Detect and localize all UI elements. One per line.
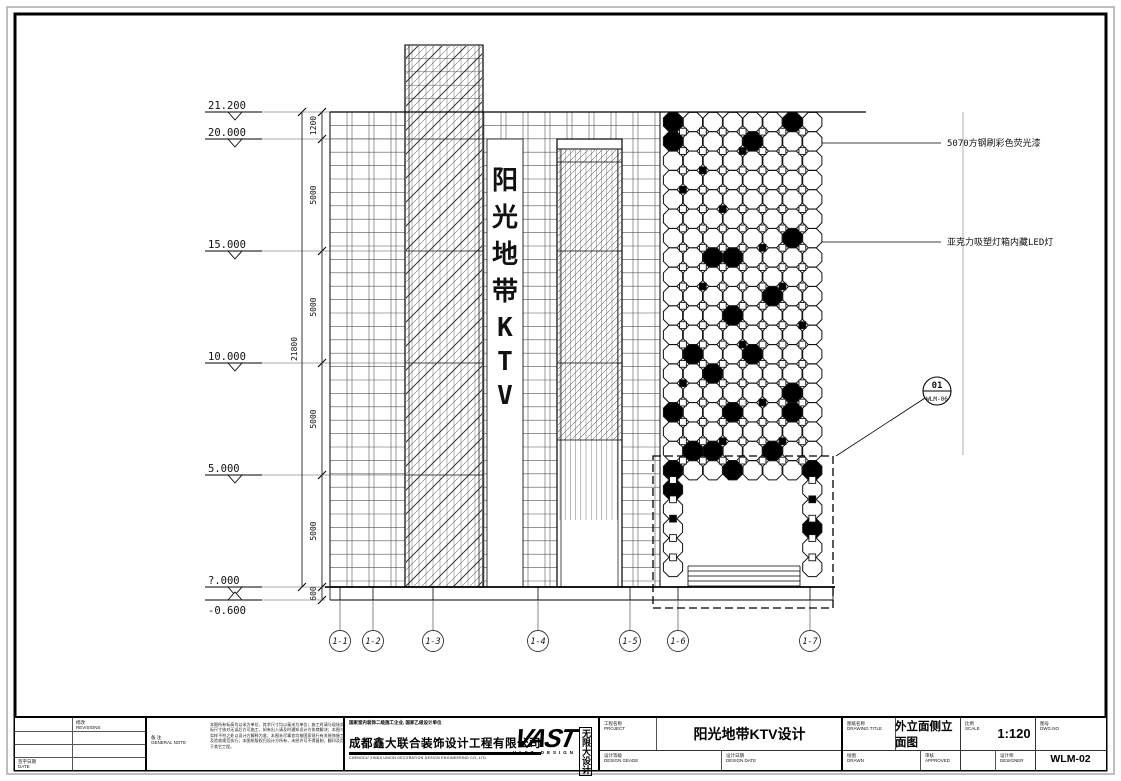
project-name: 阳光地带KTV设计 [656, 718, 843, 750]
square-cell [680, 341, 687, 348]
drawing-title-section: 图纸名称 DRAWING TITLE 外立面侧立面图 比例 SCALE 1:12… [843, 718, 1106, 770]
square-cell [799, 206, 806, 213]
vast-logo: VAST VAST DESIGN 无限大设计 [513, 727, 592, 776]
square-cell [739, 399, 746, 406]
square-cell [719, 244, 726, 251]
square-cell [799, 457, 806, 464]
square-cell [739, 186, 746, 193]
square-cell [719, 186, 726, 193]
square-cell [670, 496, 677, 503]
square-cell [719, 399, 726, 406]
square-cell [719, 419, 726, 426]
square-cell [719, 225, 726, 232]
square-cell [809, 515, 816, 522]
square-cell [799, 438, 806, 445]
square-cell [680, 360, 687, 367]
square-cell [719, 148, 726, 155]
square-cell [779, 419, 786, 426]
square-cell [699, 341, 706, 348]
square-cell [759, 148, 766, 155]
square-cell [779, 128, 786, 135]
date-label: 签字日期 DATE [16, 758, 38, 770]
square-cell [719, 322, 726, 329]
square-cell [799, 167, 806, 174]
approved-label: 审核 APPROVED [923, 752, 952, 764]
scale-label: 比例 SCALE [963, 720, 982, 732]
grid-bubble-label: 1-6 [670, 637, 685, 647]
square-cell [739, 167, 746, 174]
dwg-no-label: 图号 DWG.NO [1038, 720, 1061, 732]
square-cell [699, 399, 706, 406]
square-cell [719, 128, 726, 135]
square-cell [670, 477, 677, 484]
square-cell [680, 128, 687, 135]
square-cell [799, 419, 806, 426]
square-cell [719, 302, 726, 309]
grid-bubble-label: 1-7 [802, 637, 818, 647]
square-cell [799, 264, 806, 271]
square-cell [680, 380, 687, 387]
sign-char: 光 [491, 203, 518, 233]
square-cell [739, 264, 746, 271]
square-cell [759, 322, 766, 329]
general-note-text: 本图所有标高均以米为单位，其余尺寸均以毫米为单位；施工时请与现场实际尺寸核对无误… [207, 720, 347, 751]
elevation-mark: 5.000 [208, 463, 240, 475]
square-cell [699, 322, 706, 329]
square-cell [699, 264, 706, 271]
sign-char: 带 [492, 277, 518, 307]
square-cell [699, 419, 706, 426]
grid-bubble-label: 1-1 [332, 637, 347, 647]
square-cell [670, 535, 677, 542]
square-cell [759, 360, 766, 367]
square-cell [779, 264, 786, 271]
square-cell [719, 206, 726, 213]
square-cell [680, 457, 687, 464]
drawing-title-label: 图纸名称 DRAWING TITLE [845, 720, 884, 732]
square-cell [699, 283, 706, 290]
square-cell [670, 554, 677, 561]
square-cell [759, 244, 766, 251]
square-cell [680, 167, 687, 174]
elevation-mark: 21.200 [208, 100, 246, 112]
sign-char: 地 [492, 240, 518, 270]
square-cell [739, 341, 746, 348]
square-cell [779, 322, 786, 329]
square-cell [759, 128, 766, 135]
sign-char: K [497, 313, 513, 343]
square-cell [719, 380, 726, 387]
square-cell [680, 283, 687, 290]
dim-segment: 1200 [309, 116, 318, 135]
square-cell [809, 535, 816, 542]
square-cell [699, 225, 706, 232]
square-cell [699, 457, 706, 464]
square-cell [739, 283, 746, 290]
square-cell [779, 380, 786, 387]
square-cell [759, 264, 766, 271]
square-cell [699, 186, 706, 193]
square-cell [699, 148, 706, 155]
square-cell [739, 457, 746, 464]
revisions-label: 修改 REVISIONS [74, 719, 103, 731]
grid-bubbles: 1-11-21-31-41-51-61-7 [330, 600, 821, 652]
square-cell [779, 341, 786, 348]
square-cell [779, 283, 786, 290]
square-cell [739, 438, 746, 445]
square-cell [759, 167, 766, 174]
square-cell [799, 244, 806, 251]
square-cell [680, 264, 687, 271]
square-cell [759, 457, 766, 464]
grid-bubble-label: 1-4 [530, 637, 545, 647]
square-cell [799, 283, 806, 290]
square-cell [739, 419, 746, 426]
square-cell [799, 128, 806, 135]
square-cell [799, 148, 806, 155]
square-cell [680, 148, 687, 155]
square-cell [739, 128, 746, 135]
square-cell [739, 302, 746, 309]
square-cell [680, 419, 687, 426]
dim-segment: 600 [309, 586, 318, 601]
square-cell [779, 167, 786, 174]
square-cell [699, 244, 706, 251]
grid-bubble-label: 1-3 [425, 637, 440, 647]
dwg-no-value: WLM-02 [1035, 748, 1106, 770]
drawing-title-value: 外立面侧立面图 [895, 718, 960, 750]
square-cell [779, 360, 786, 367]
square-cell [759, 341, 766, 348]
square-cell [739, 225, 746, 232]
annotation-led: 亚克力吸塑灯箱内藏LED灯 [947, 236, 1053, 248]
square-cell [759, 302, 766, 309]
square-cell [759, 283, 766, 290]
elevation-mark: 20.000 [208, 127, 246, 139]
square-cell [699, 302, 706, 309]
scale-value: 1:120 [993, 718, 1035, 748]
project-label: 工程名称 PROJECT [602, 720, 627, 732]
octagon-facade-pattern [663, 112, 822, 587]
square-cell [809, 477, 816, 484]
square-cell [699, 206, 706, 213]
elevation-mark: -0.600 [208, 605, 246, 617]
square-cell [799, 360, 806, 367]
square-cell [719, 264, 726, 271]
designer-label: 设计师 DESIGNER [998, 752, 1026, 764]
grid-bubble-label: 1-5 [622, 637, 637, 647]
square-cell [779, 206, 786, 213]
design-date-label: 设计日期 DESIGN DATE [724, 752, 758, 764]
square-cell [809, 496, 816, 503]
square-cell [739, 322, 746, 329]
square-cell [719, 438, 726, 445]
dim-segment: 5000 [309, 409, 318, 428]
detail-sheet: WLM-06 [926, 396, 948, 403]
square-cell [799, 186, 806, 193]
square-cell [759, 438, 766, 445]
elevation-mark: 10.000 [208, 351, 246, 363]
square-cell [719, 457, 726, 464]
square-cell [680, 322, 687, 329]
sign-char: V [497, 381, 513, 411]
square-cell [680, 244, 687, 251]
square-cell [799, 341, 806, 348]
detail-number: 01 [932, 381, 943, 391]
square-cell [799, 399, 806, 406]
general-note-label: 备 注 GENERAL NOTE [149, 734, 207, 746]
square-cell [739, 360, 746, 367]
dim-segment: 5000 [309, 297, 318, 316]
square-cell [799, 380, 806, 387]
square-cell [779, 438, 786, 445]
dim-overall: 21800 [290, 337, 299, 361]
square-cell [699, 167, 706, 174]
square-cell [739, 148, 746, 155]
dim-segment: 5000 [309, 185, 318, 204]
square-cell [699, 438, 706, 445]
dimension-chain: 1200500050005000500060021800 [290, 108, 326, 604]
square-cell [779, 457, 786, 464]
elevation-mark: 15.000 [208, 239, 246, 251]
square-cell [779, 302, 786, 309]
square-cell [779, 244, 786, 251]
square-cell [719, 360, 726, 367]
square-cell [759, 225, 766, 232]
square-cell [670, 515, 677, 522]
square-cell [759, 399, 766, 406]
square-cell [759, 380, 766, 387]
sign-char: 阳 [492, 166, 518, 196]
vast-logo-cn: 无限大设计 [579, 727, 592, 776]
square-cell [779, 148, 786, 155]
design-grade-label: 设计等级 DESIGN GEADE [602, 752, 640, 764]
sign-char: T [497, 347, 513, 377]
elevation-drawing: 阳光地带KTV 1200500050005000500060021800 21.… [0, 0, 1121, 781]
drawn-label: 绘图 DRAWN [845, 752, 866, 764]
square-cell [779, 225, 786, 232]
revisions-section: 修改 REVISIONS 签字日期 DATE [15, 718, 147, 770]
square-cell [799, 322, 806, 329]
detail-leader [836, 398, 925, 456]
square-cell [719, 167, 726, 174]
company-section: 国家室内装饰二级施工企业, 国家乙级设计单位 成都鑫大联合装饰设计工程有限公司 … [345, 718, 600, 770]
square-cell [680, 225, 687, 232]
grid-bubble-label: 1-2 [365, 637, 380, 647]
square-cell [699, 128, 706, 135]
square-cell [799, 302, 806, 309]
ktv-sign: 阳光地带KTV [487, 139, 523, 587]
square-cell [739, 244, 746, 251]
square-cell [779, 186, 786, 193]
company-name-en: CHENGDU XINDA UNION DECORATION DESIGN EN… [349, 756, 487, 760]
square-cell [759, 419, 766, 426]
vast-logo-text: VAST [510, 727, 578, 750]
square-cell [680, 186, 687, 193]
dim-segment: 5000 [309, 521, 318, 540]
square-cell [779, 399, 786, 406]
square-cell [809, 554, 816, 561]
square-cell [739, 380, 746, 387]
square-cell [759, 206, 766, 213]
square-cell [759, 186, 766, 193]
square-cell [739, 206, 746, 213]
annotation-steel: 5070方钢刷彩色荧光漆 [947, 137, 1041, 149]
square-cell [719, 341, 726, 348]
ground-lines [325, 587, 835, 600]
elevation-mark: ?.000 [208, 575, 240, 587]
cad-sheet: 阳光地带KTV 1200500050005000500060021800 21.… [0, 0, 1121, 781]
square-cell [680, 438, 687, 445]
general-note-section: 备 注 GENERAL NOTE 本图所有标高均以米为单位，其余尺寸均以毫米为单… [147, 718, 345, 770]
square-cell [680, 399, 687, 406]
square-cell [719, 283, 726, 290]
square-cell [699, 380, 706, 387]
title-block: 修改 REVISIONS 签字日期 DATE 备 注 GENERAL NOTE … [15, 716, 1106, 770]
square-cell [799, 225, 806, 232]
square-cell [699, 360, 706, 367]
square-cell [680, 206, 687, 213]
project-section: 工程名称 PROJECT 阳光地带KTV设计 设计等级 DESIGN GEADE… [600, 718, 843, 770]
square-cell [680, 302, 687, 309]
